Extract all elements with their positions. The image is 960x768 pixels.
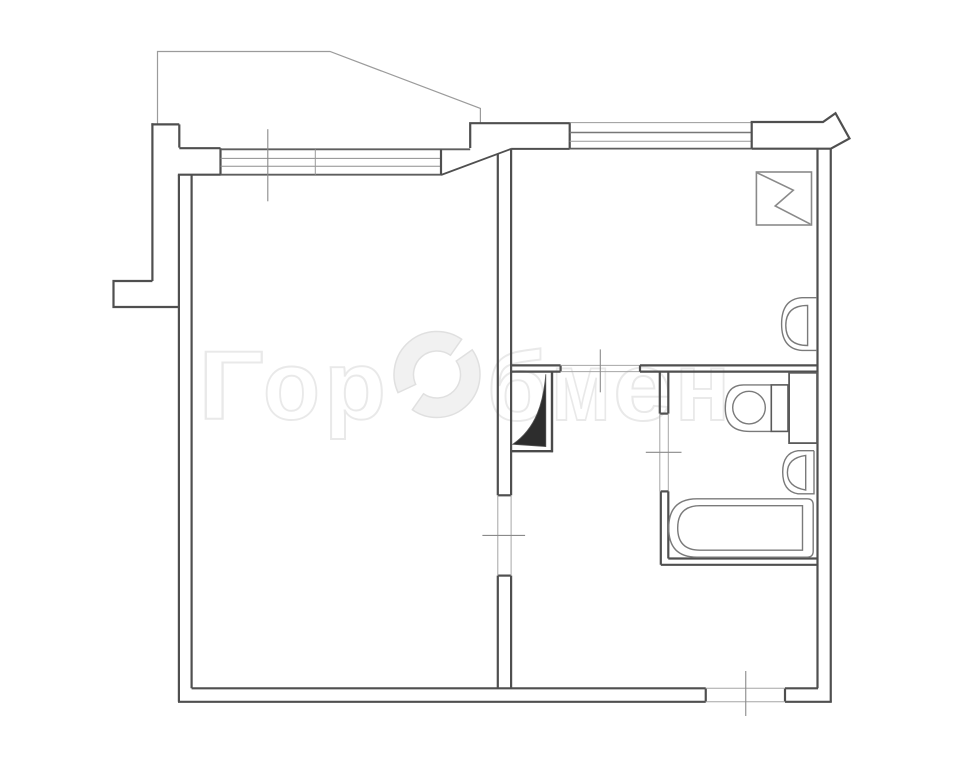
svg-text:е: е	[613, 332, 672, 441]
svg-text:р: р	[324, 331, 386, 440]
svg-text:Г: Г	[198, 331, 264, 440]
svg-text:н: н	[675, 332, 730, 441]
svg-text:о: о	[263, 331, 320, 440]
svg-text:м: м	[551, 332, 611, 441]
